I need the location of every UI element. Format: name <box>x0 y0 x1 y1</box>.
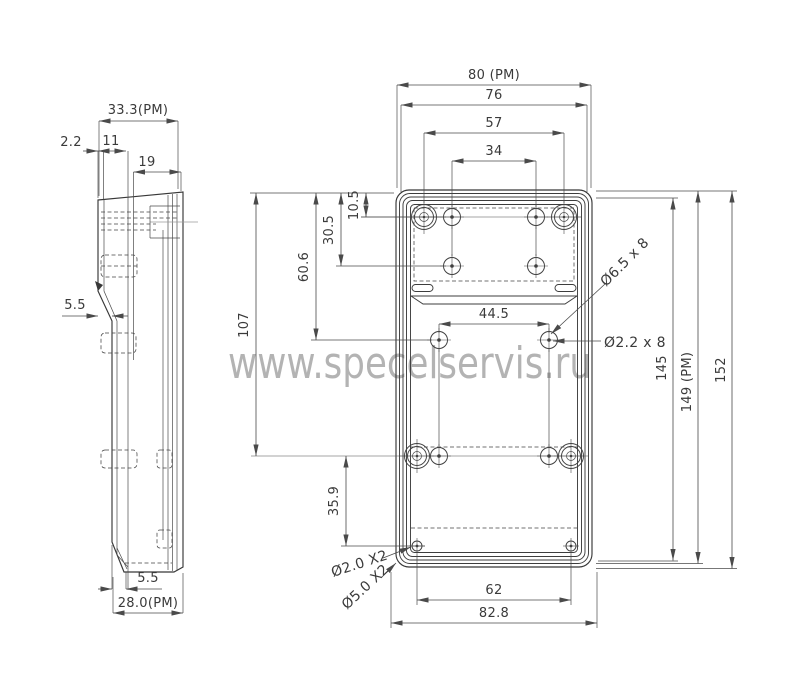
dim-row4-label: 107 <box>237 312 252 338</box>
dim-side-lip: 2.2 <box>60 135 103 199</box>
side-view: 33.3(PM) 2.2 11 19 5.5 5.5 <box>60 103 198 613</box>
dim-side-overall-width: 33.3(PM) <box>99 103 178 196</box>
dim-row2-label: 30.5 <box>322 215 337 245</box>
hole-bottom-right <box>537 444 561 468</box>
hole-mid-right <box>524 254 548 278</box>
dim-side-step: 5.5 <box>62 298 128 316</box>
divider-bevel <box>411 296 577 304</box>
dim-height-overall-label: 152 <box>714 357 729 383</box>
dim-side-depth-19: 19 <box>134 155 182 360</box>
dim-label: 28.0(PM) <box>118 596 179 611</box>
slot-right <box>555 285 576 292</box>
slot-left <box>412 285 433 292</box>
dim-label: 33.3(PM) <box>108 103 169 118</box>
dim-label: 44.5 <box>479 307 509 322</box>
side-hidden-boss-3 <box>101 450 137 468</box>
dim-label: 11 <box>102 134 119 149</box>
drawing-canvas: www.specelservis.ru <box>0 0 800 700</box>
dim-width-inner: 76 <box>401 88 587 192</box>
dim-row5-label: 35.9 <box>327 486 342 516</box>
side-hidden-boss-5 <box>157 530 172 548</box>
dim-label: 82.8 <box>479 606 509 621</box>
dim-mid-holes: 44.5 <box>439 307 549 333</box>
top-hidden-rect <box>414 208 574 281</box>
side-hidden-boss-2 <box>101 333 136 353</box>
dim-label: 57 <box>485 116 502 131</box>
side-view-outline <box>98 192 183 572</box>
dim-bottom-holes: 62 <box>417 554 571 605</box>
dim-row1-label: 10.5 <box>347 190 362 220</box>
callout-boss-label: Ø6.5 x 8 <box>598 235 653 290</box>
dim-label: 19 <box>138 155 155 170</box>
side-hidden-boss-4 <box>157 450 172 468</box>
dim-hole-span: 34 <box>452 144 536 208</box>
dim-height-inner-label: 145 <box>655 355 670 381</box>
step-arrow <box>95 281 103 291</box>
watermark-text: www.specelservis.ru <box>228 338 592 389</box>
dim-row3-label: 60.6 <box>297 252 312 282</box>
dim-label: 76 <box>485 88 502 103</box>
callout-hole-label: Ø2.2 x 8 <box>604 335 666 351</box>
hole-top-right <box>524 205 548 229</box>
dim-side-offset-11: 11 <box>98 134 126 198</box>
hole-bottom-left <box>427 444 451 468</box>
side-hidden-boss-1 <box>101 255 137 277</box>
dims-right: 145 149 (PM) 152 <box>596 191 737 569</box>
dim-height-pm-label: 149 (PM) <box>680 352 695 413</box>
dim-label: 2.2 <box>60 135 82 150</box>
dim-label: 62 <box>485 583 502 598</box>
technical-drawing: www.specelservis.ru <box>0 0 800 700</box>
dim-side-bottom-taper: 5.5 <box>98 545 162 589</box>
dim-label: 5.5 <box>64 298 86 313</box>
dim-label: 5.5 <box>137 571 159 586</box>
dim-label: 34 <box>485 144 502 159</box>
dim-label: 80 (PM) <box>468 68 520 83</box>
